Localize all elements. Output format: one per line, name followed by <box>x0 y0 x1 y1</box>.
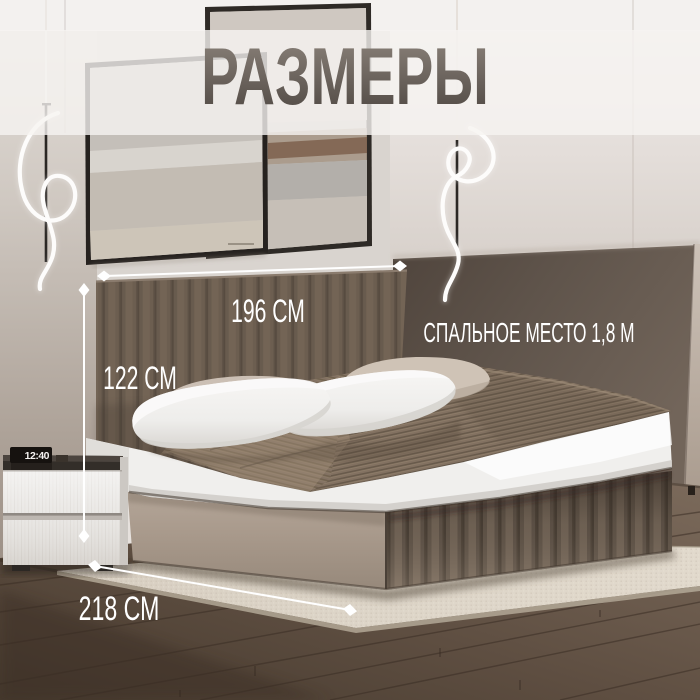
svg-text:РАЗМЕРЫ: РАЗМЕРЫ <box>201 31 489 121</box>
svg-text:СПАЛЬНОЕ МЕСТО 1,8 М: СПАЛЬНОЕ МЕСТО 1,8 М <box>423 317 634 348</box>
svg-text:196 СМ: 196 СМ <box>231 292 305 329</box>
svg-text:122 СМ: 122 СМ <box>103 359 177 396</box>
svg-text:218 СМ: 218 СМ <box>79 591 160 628</box>
svg-text:12:40: 12:40 <box>25 450 50 462</box>
